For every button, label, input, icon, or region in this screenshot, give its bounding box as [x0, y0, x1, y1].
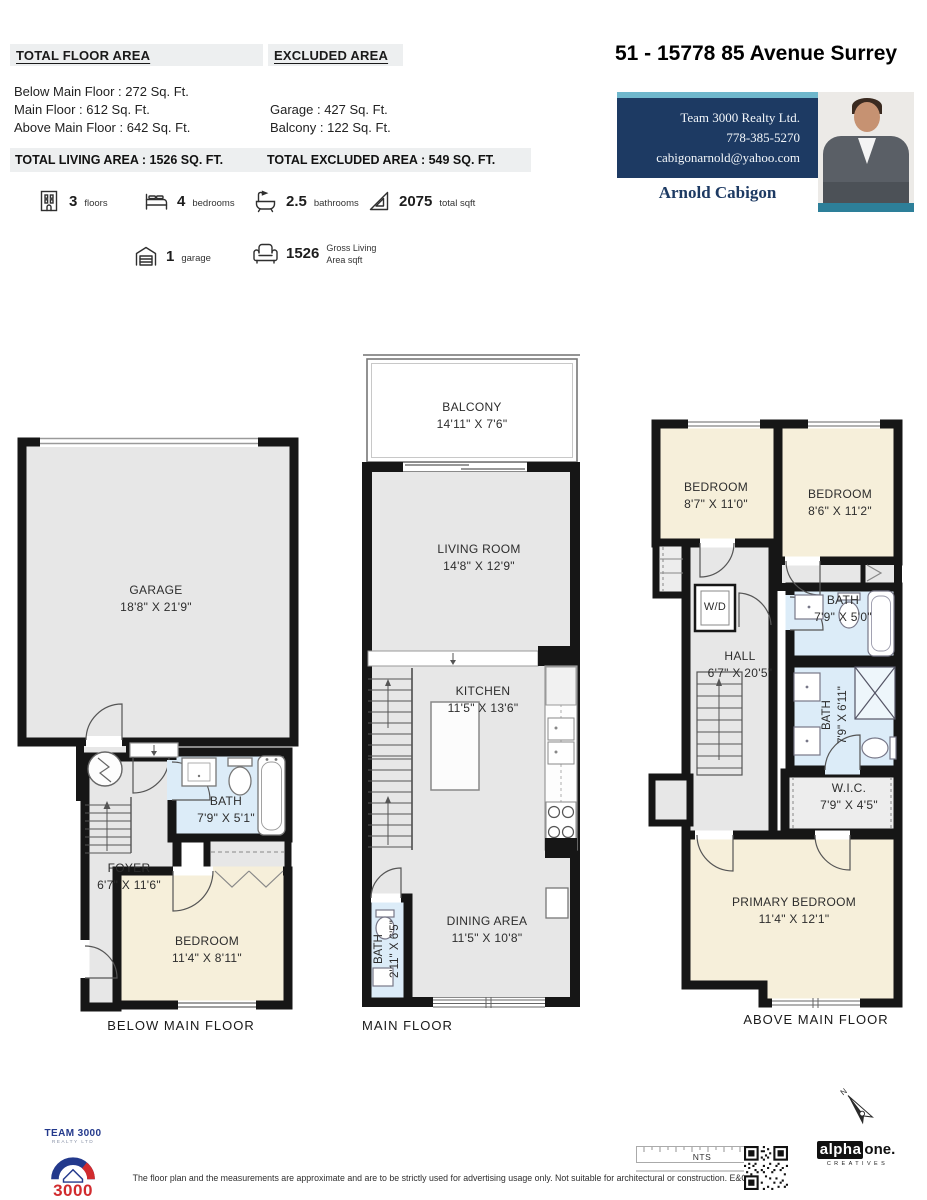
label-garage-dims: 18'8" X 21'9": [120, 599, 192, 616]
stat-bathrooms: 2.5 bathrooms: [252, 188, 359, 214]
label-bath-below-name: BATH: [197, 793, 255, 810]
disclaimer-text: The floor plan and the measurements are …: [130, 1173, 785, 1183]
armchair-icon: [252, 240, 279, 267]
label-bedroom1: BEDROOM 8'7" X 11'0": [684, 479, 748, 514]
bedroom-below-window: [178, 1001, 256, 1010]
label-balcony: BALCONY 14'11" X 7'6": [437, 399, 508, 434]
label-bath-main: BATH 2'11" X 6'5": [371, 909, 403, 989]
label-living-room-dims: 14'8" X 12'9": [437, 558, 520, 575]
alphaone-logo-creatives: CREATIVES: [824, 1161, 888, 1167]
team3000-logo-title: TEAM 3000: [45, 1128, 102, 1139]
label-bath-lower: BATH 7'9" X 6'11": [819, 665, 851, 765]
label-wic-name: W.I.C.: [820, 780, 878, 797]
building-icon: [36, 188, 62, 214]
stat-floors-label: floors: [84, 198, 107, 209]
stat-bedrooms-label: bedrooms: [192, 198, 234, 209]
label-bedroom2-name: BEDROOM: [808, 486, 872, 503]
label-bedroom2-dims: 8'6" X 11'2": [808, 503, 872, 520]
agent-phone: 778-385-5270: [726, 128, 800, 148]
label-bedroom2: BEDROOM 8'6" X 11'2": [808, 486, 872, 521]
label-balcony-dims: 14'11" X 7'6": [437, 416, 508, 433]
label-bath-upper-name: BATH: [814, 592, 872, 609]
bedroom2-window: [808, 420, 880, 429]
below-main-floor-area-line: Below Main Floor : 272 Sq. Ft.: [14, 83, 189, 101]
floorplan-below-main: [10, 432, 310, 1012]
balcony-area-line: Balcony : 122 Sq. Ft.: [270, 119, 391, 137]
above-main-floor-area-line: Above Main Floor : 642 Sq. Ft.: [14, 119, 190, 137]
agent-photo: [818, 92, 914, 203]
label-foyer-name: FOYER: [97, 860, 161, 877]
bathtub-icon: [252, 188, 279, 214]
stat-garage-label: garage: [181, 253, 211, 264]
stat-gross-living: 1526 Gross Living Area sqft: [252, 240, 376, 267]
excluded-area-heading-text: EXCLUDED AREA: [274, 48, 388, 63]
stat-floors: 3 floors: [36, 188, 108, 214]
label-dining-area: DINING AREA 11'5" X 10'8": [447, 913, 528, 948]
label-above-main-floor: ABOVE MAIN FLOOR: [743, 1012, 888, 1027]
total-floor-area-heading: TOTAL FLOOR AREA: [10, 44, 263, 66]
agent-name: Arnold Cabigon: [617, 183, 818, 203]
label-foyer: FOYER 6'7" X 11'6": [97, 860, 161, 895]
label-living-room: LIVING ROOM 14'8" X 12'9": [437, 541, 520, 576]
garage-door: [40, 436, 258, 447]
label-primary-bedroom-dims: 11'4" X 12'1": [732, 911, 856, 928]
excluded-area-heading: EXCLUDED AREA: [268, 44, 403, 66]
stove: [546, 802, 576, 844]
label-bath-upper: BATH 7'9" X 5'0": [814, 592, 872, 627]
dining-windows: [433, 997, 545, 1008]
ruler-triangle-icon: [366, 188, 392, 214]
label-bedroom-below-name: BEDROOM: [172, 933, 242, 950]
stat-total-sqft-label: total sqft: [439, 198, 475, 209]
stat-bathrooms-value: 2.5: [286, 193, 307, 210]
label-wic-dims: 7'9" X 4'5": [820, 797, 878, 814]
label-kitchen-dims: 11'5" X 13'6": [448, 700, 519, 717]
label-foyer-dims: 6'7" X 11'6": [97, 877, 161, 894]
primary-window: [772, 998, 860, 1008]
label-bedroom-below: BEDROOM 11'4" X 8'11": [172, 933, 242, 968]
label-bath-lower-name: BATH: [819, 665, 835, 765]
team3000-arch-icon: [49, 1145, 97, 1183]
alphaone-logo-alpha: alpha: [817, 1141, 864, 1159]
team3000-logo: TEAM 3000 REALTY LTD 3000: [38, 1128, 108, 1200]
stat-total-sqft: 2075 total sqft: [366, 188, 475, 214]
room-closet-below: [207, 838, 288, 871]
bedroom1-window: [688, 420, 760, 429]
label-kitchen: KITCHEN 11'5" X 13'6": [448, 683, 519, 718]
balcony-sliding-door: [403, 463, 527, 472]
label-bedroom1-name: BEDROOM: [684, 479, 748, 496]
label-hall-dims: 6'7" X 20'5": [708, 665, 773, 682]
label-kitchen-name: KITCHEN: [448, 683, 519, 700]
label-wd: W/D: [704, 600, 726, 616]
label-bath-main-name: BATH: [371, 909, 387, 989]
dining-niche: [546, 888, 568, 918]
label-primary-bedroom: PRIMARY BEDROOM 11'4" X 12'1": [732, 894, 856, 929]
property-address: 51 - 15778 85 Avenue Surrey: [600, 42, 912, 66]
label-living-room-name: LIVING ROOM: [437, 541, 520, 558]
floorplan-flyer-page: TOTAL FLOOR AREA EXCLUDED AREA Below Mai…: [0, 0, 927, 1200]
stat-gross-living-label-line1: Gross Living: [326, 243, 376, 254]
label-bath-upper-dims: 7'9" X 5'0": [814, 609, 872, 626]
team3000-logo-number: 3000: [53, 1181, 93, 1200]
agent-company: Team 3000 Realty Ltd.: [680, 108, 800, 128]
label-bath-lower-dims: 7'9" X 6'11": [835, 665, 851, 765]
label-wic: W.I.C. 7'9" X 4'5": [820, 780, 878, 815]
fridge: [546, 667, 576, 705]
north-arrow-icon: N: [832, 1082, 896, 1146]
wall-stub: [545, 838, 577, 858]
north-label: N: [839, 1086, 849, 1097]
stat-gross-living-value: 1526: [286, 245, 319, 262]
stat-total-sqft-value: 2075: [399, 193, 432, 210]
kitchen-counter: [545, 666, 577, 858]
label-bath-below-dims: 7'9" X 5'1": [197, 810, 255, 827]
garage-area-line: Garage : 427 Sq. Ft.: [270, 101, 388, 119]
furnace: [88, 752, 122, 786]
garage-icon: [133, 243, 159, 269]
label-bedroom1-dims: 8'7" X 11'0": [684, 496, 748, 513]
stat-bathrooms-label: bathrooms: [314, 198, 359, 209]
bed-icon: [143, 188, 170, 214]
label-garage-name: GARAGE: [120, 582, 192, 599]
agent-photo-face: [854, 102, 880, 132]
label-bath-main-dims: 2'11" X 6'5": [387, 909, 403, 989]
label-below-main-floor: BELOW MAIN FLOOR: [107, 1018, 254, 1033]
stat-gross-living-label-line2: Area sqft: [326, 255, 376, 266]
main-floor-area-line: Main Floor : 612 Sq. Ft.: [14, 101, 150, 119]
alphaone-logo-one: one.: [864, 1141, 895, 1158]
landing-step: [130, 743, 178, 757]
agent-email: cabigonarnold@yahoo.com: [656, 148, 800, 168]
stat-garage-value: 1: [166, 248, 174, 265]
label-main-floor: MAIN FLOOR: [362, 1018, 453, 1033]
stat-bedrooms: 4 bedrooms: [143, 188, 235, 214]
label-dining-area-name: DINING AREA: [447, 913, 528, 930]
label-bedroom-below-dims: 11'4" X 8'11": [172, 950, 242, 967]
label-hall-name: HALL: [708, 648, 773, 665]
alphaone-logo: alpha one. CREATIVES: [806, 1141, 906, 1167]
label-balcony-name: BALCONY: [437, 399, 508, 416]
stat-gross-living-label: Gross Living Area sqft: [326, 243, 376, 266]
agent-card: Team 3000 Realty Ltd. 778-385-5270 cabig…: [617, 98, 818, 178]
stat-floors-value: 3: [69, 193, 77, 210]
total-floor-area-heading-text: TOTAL FLOOR AREA: [16, 48, 150, 63]
storage-closet: [652, 777, 690, 823]
total-excluded-area-bar: TOTAL EXCLUDED AREA : 549 SQ. FT.: [262, 148, 531, 172]
label-garage: GARAGE 18'8" X 21'9": [120, 582, 192, 617]
agent-photo-arms: [823, 182, 909, 203]
label-hall: HALL 6'7" X 20'5": [708, 648, 773, 683]
qr-code: [744, 1146, 788, 1190]
label-primary-bedroom-name: PRIMARY BEDROOM: [732, 894, 856, 911]
label-dining-area-dims: 11'5" X 10'8": [447, 930, 528, 947]
stat-bedrooms-value: 4: [177, 193, 185, 210]
stat-garage: 1 garage: [133, 243, 211, 269]
agent-photo-teal-strip: [818, 203, 914, 212]
total-living-area-bar: TOTAL LIVING AREA : 1526 SQ. FT.: [10, 148, 263, 172]
label-bath-below: BATH 7'9" X 5'1": [197, 793, 255, 828]
